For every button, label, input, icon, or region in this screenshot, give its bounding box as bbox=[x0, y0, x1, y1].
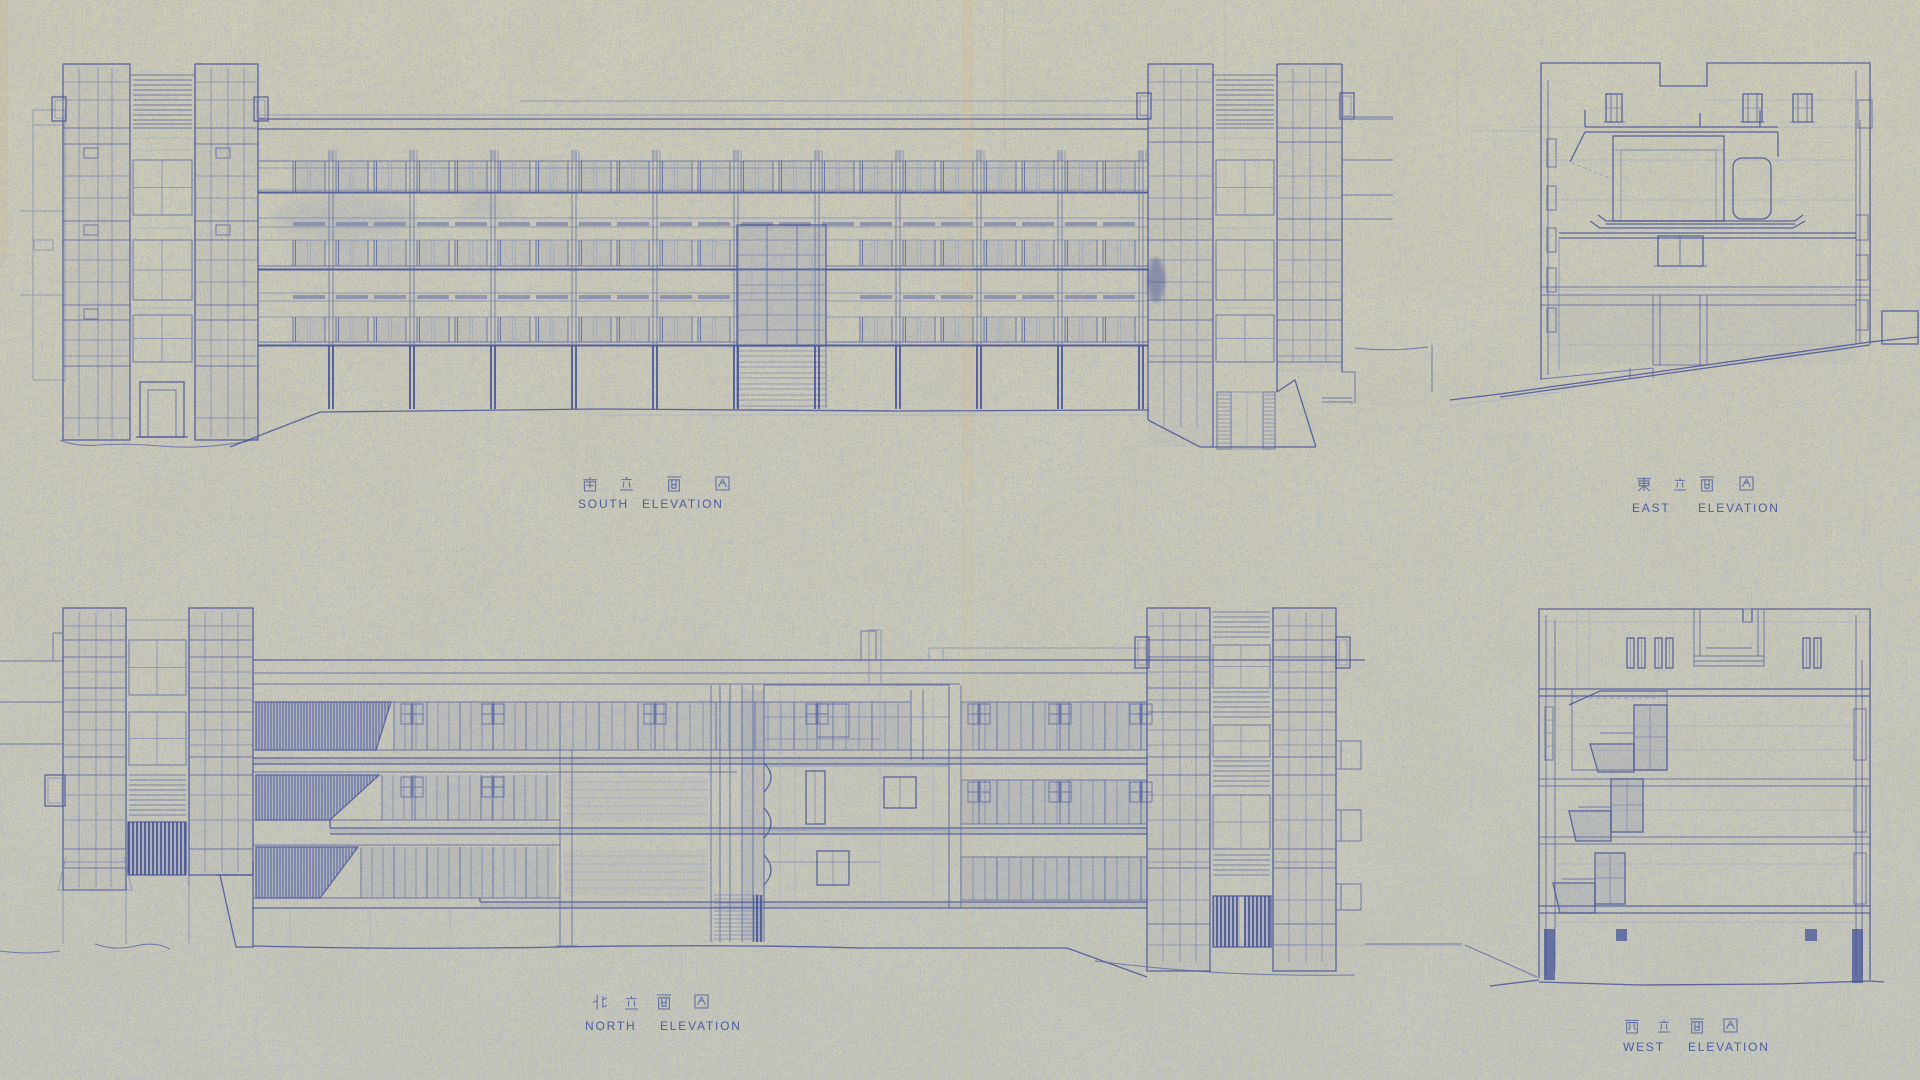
svg-text:ELEVATION: ELEVATION bbox=[660, 1019, 742, 1033]
svg-text:EAST: EAST bbox=[1632, 501, 1671, 515]
svg-text:ELEVATION: ELEVATION bbox=[1698, 501, 1780, 515]
svg-text:SOUTH: SOUTH bbox=[578, 497, 629, 511]
svg-text:WEST: WEST bbox=[1623, 1040, 1665, 1054]
svg-text:ELEVATION: ELEVATION bbox=[642, 497, 724, 511]
svg-text:ELEVATION: ELEVATION bbox=[1688, 1040, 1770, 1054]
svg-text:NORTH: NORTH bbox=[585, 1019, 636, 1033]
